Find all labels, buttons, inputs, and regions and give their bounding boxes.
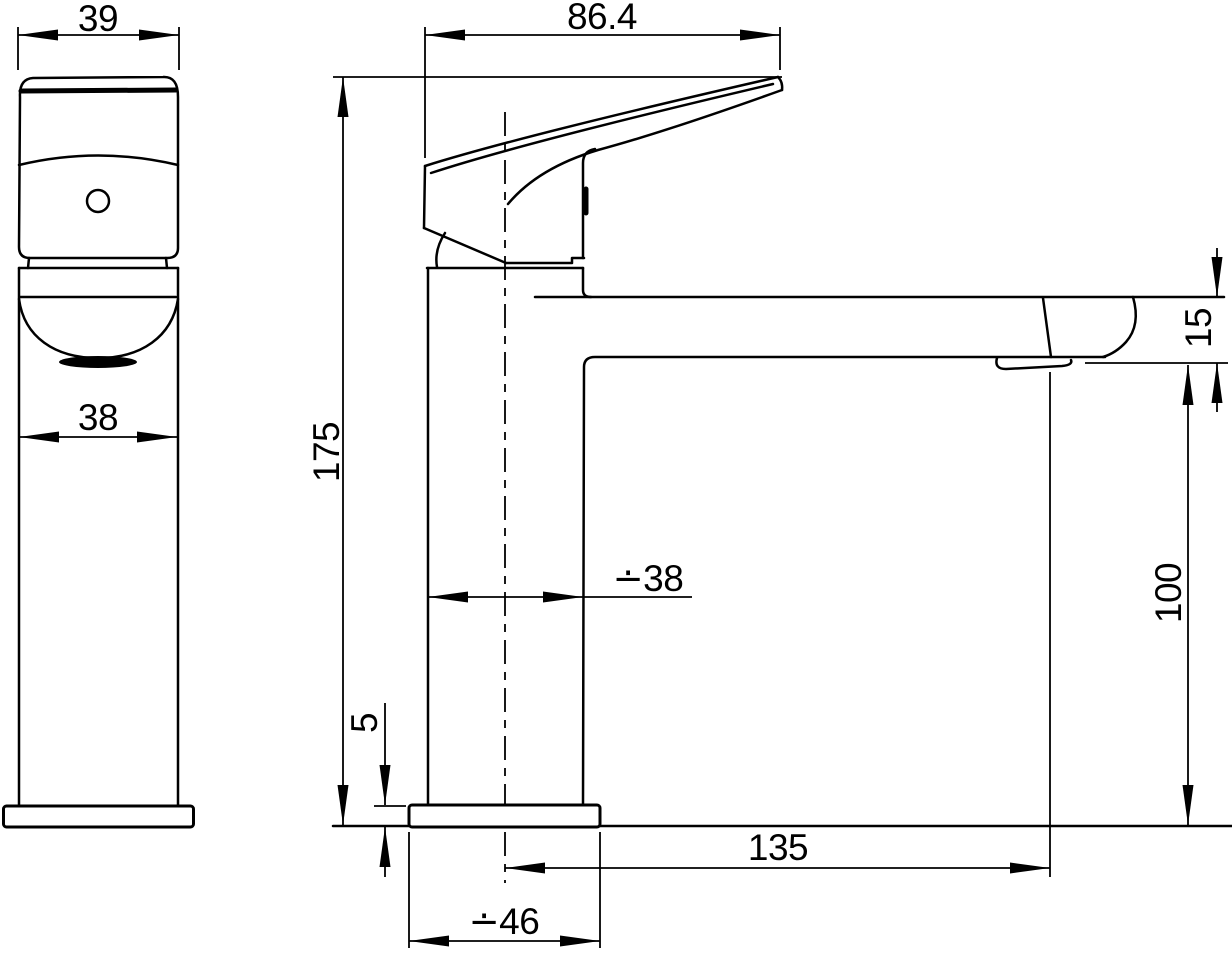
arrowhead-top: [1183, 365, 1194, 405]
side-spout-front-edge: [1043, 298, 1051, 357]
side-handle-tip: [778, 77, 782, 90]
dim-label-spout-reach: 135: [748, 827, 808, 868]
arrowhead-left: [425, 30, 465, 41]
faucet-dimension-drawing: 39 38: [0, 0, 1232, 957]
front-aerator-outlet: [59, 356, 137, 368]
side-pivot-left-edge: [424, 166, 425, 228]
dim-label-handle-width: 39: [78, 0, 118, 39]
arrowhead-right: [543, 592, 583, 603]
dim-label-base-plate-thickness: 5: [344, 713, 385, 733]
arrowhead-up: [1212, 363, 1223, 403]
side-handle-inner-edge: [431, 84, 773, 173]
technical-drawing-sheet: 39 38: [0, 0, 1232, 957]
arrowhead-right: [560, 936, 600, 947]
dimension-body-diameter: ∸38: [428, 558, 692, 603]
arrowhead-right: [139, 30, 179, 41]
arrowhead-left: [428, 592, 468, 603]
front-spout-underside-curve: [19, 299, 178, 358]
arrowhead-left: [19, 432, 59, 443]
dimension-spout-reach: 135: [505, 372, 1050, 877]
arrowhead-top: [338, 77, 349, 117]
arrowhead-left: [409, 936, 449, 947]
side-handle-top-edge: [425, 77, 778, 166]
dim-label-spout-underside-height: 100: [1148, 563, 1189, 623]
front-handle-outline: [19, 77, 178, 258]
side-spout-mouth-curve: [1103, 297, 1136, 357]
arrowhead-down: [380, 765, 391, 805]
dimension-body-width: 38: [19, 397, 177, 443]
arrowhead-bottom: [338, 785, 349, 825]
side-body-right-upper: [583, 268, 591, 297]
arrowhead-right: [137, 432, 177, 443]
dim-label-handle-length: 86.4: [567, 0, 637, 37]
arrowhead-down: [1212, 257, 1223, 297]
arrowhead-left: [18, 30, 58, 41]
side-aerator-tip: [996, 358, 1071, 369]
front-handle-face-arc: [19, 156, 178, 166]
arrowhead-left: [505, 863, 545, 874]
front-handle-lever-edge: [21, 90, 176, 91]
front-neck-left: [28, 258, 29, 268]
dim-label-base-diameter: ∸46: [469, 901, 540, 942]
dimension-spout-end-height: 15: [1085, 248, 1228, 412]
side-neck-arc: [436, 233, 445, 267]
side-view: 86.4 175 ∸38 15: [306, 0, 1232, 948]
dim-label-body-width: 38: [78, 397, 118, 438]
dim-label-spout-end-height: 15: [1178, 308, 1219, 348]
front-handle-indicator-dot: [87, 190, 109, 212]
dimension-handle-width: 39: [18, 0, 179, 70]
dim-label-body-diameter: ∸38: [613, 558, 684, 599]
dimension-handle-length: 86.4: [425, 0, 780, 158]
dimension-base-plate-thickness: 5: [344, 703, 406, 877]
front-view: 39 38: [4, 0, 194, 827]
side-base-plate: [409, 805, 600, 827]
dimension-spout-underside-height: 100: [1148, 365, 1194, 825]
front-neck-right: [166, 258, 167, 268]
side-pivot-bottom-edge: [506, 258, 584, 263]
front-base-plate: [4, 806, 194, 827]
dim-label-overall-height: 175: [306, 422, 347, 482]
arrowhead-right: [740, 30, 780, 41]
arrowhead-up: [380, 827, 391, 867]
arrowhead-bottom: [1183, 785, 1194, 825]
arrowhead-right: [1010, 863, 1050, 874]
dimension-overall-height: 175: [306, 77, 782, 825]
